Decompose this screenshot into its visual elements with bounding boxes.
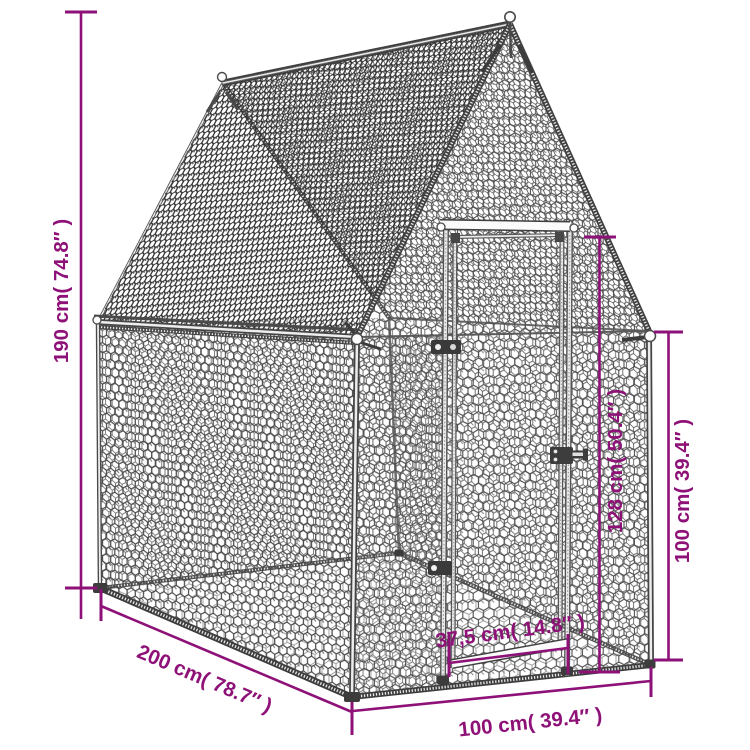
- svg-text:190 cm( 74.8″ ): 190 cm( 74.8″ ): [50, 219, 73, 363]
- svg-text:128 cm( 50.4″ ): 128 cm( 50.4″ ): [604, 389, 627, 533]
- svg-text:100 cm( 39.4″ ): 100 cm( 39.4″ ): [671, 419, 694, 563]
